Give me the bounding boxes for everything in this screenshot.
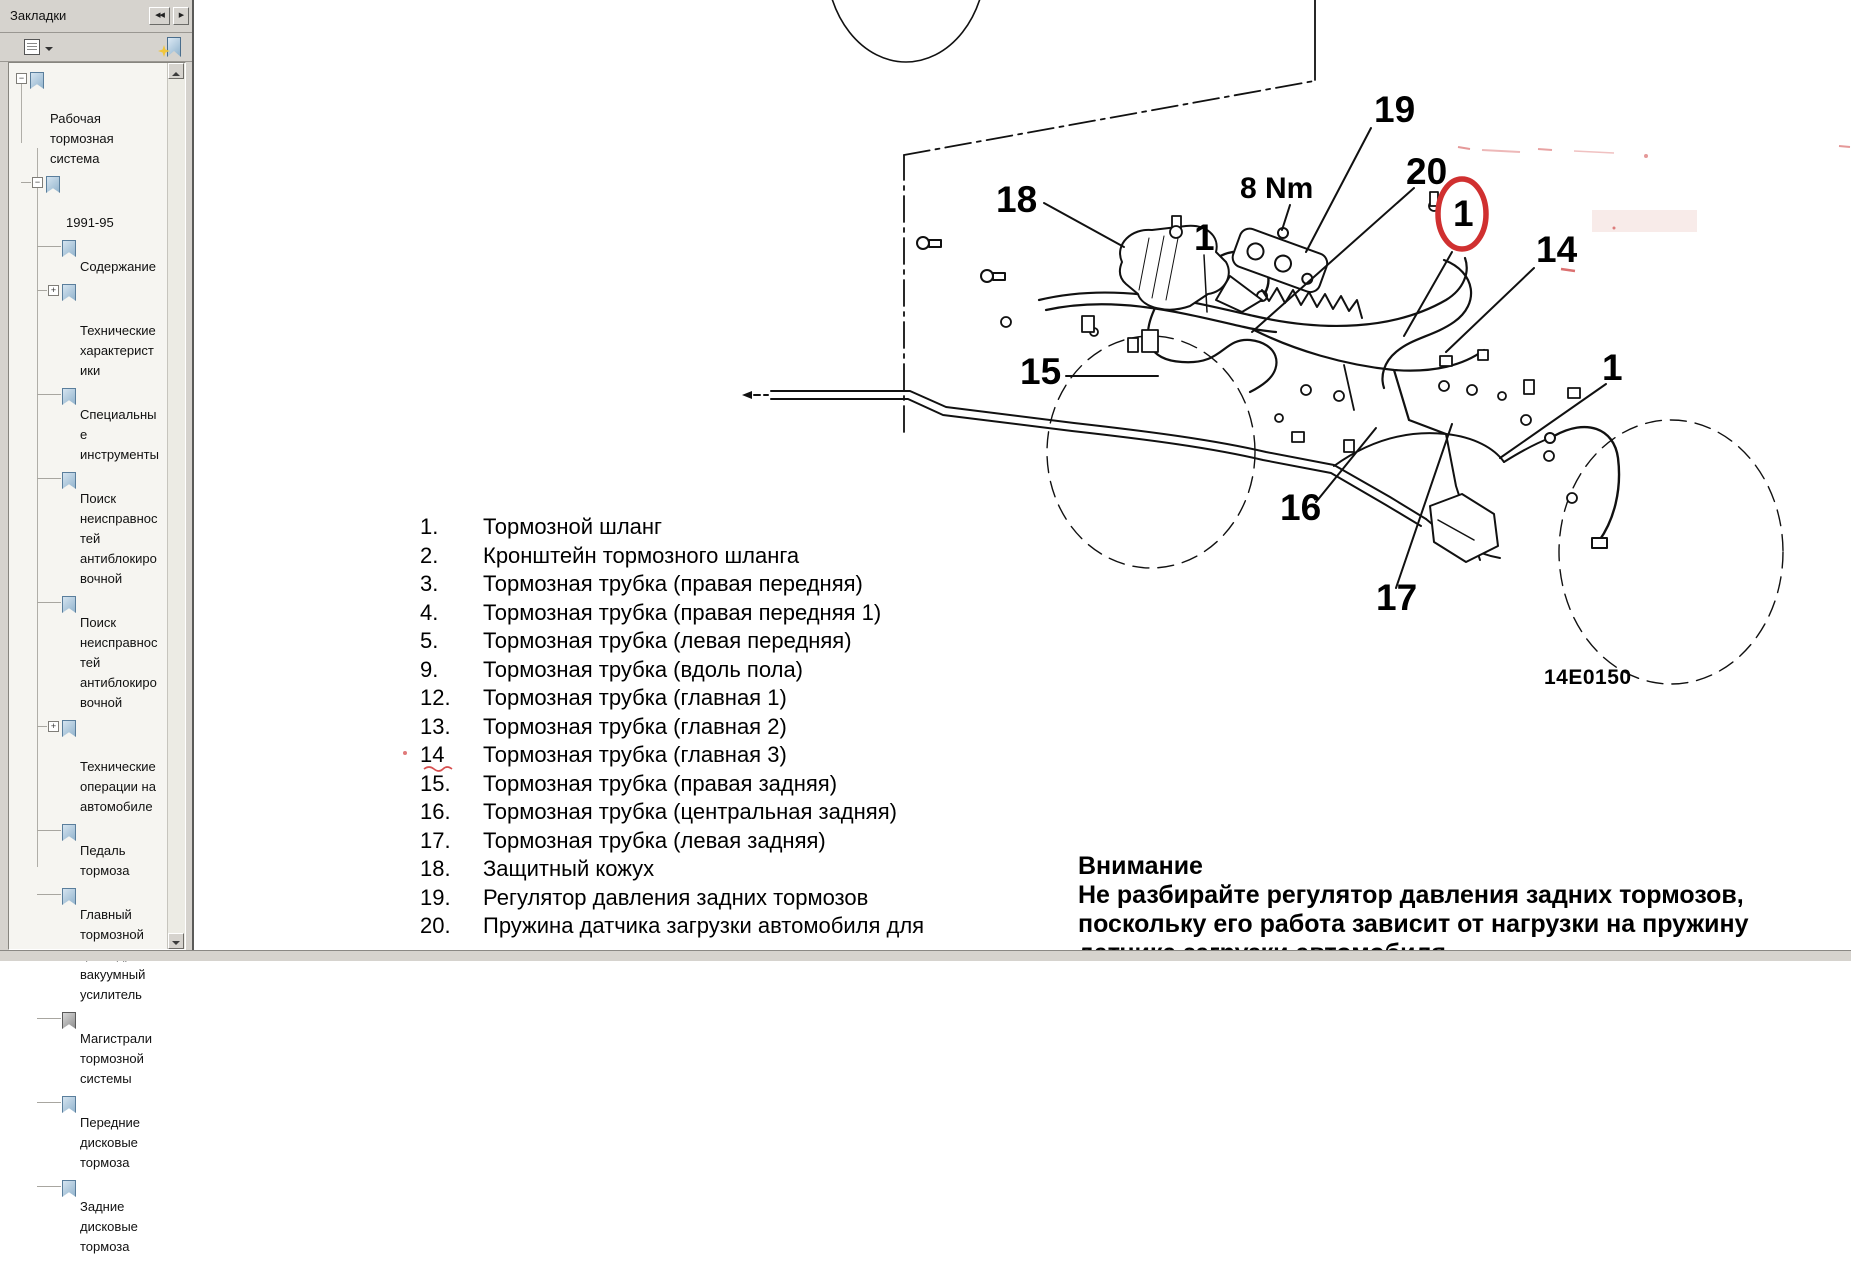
- main-brake-pipes: [1039, 258, 1484, 434]
- item-number: 1.: [420, 514, 483, 540]
- list-item: 13.Тормозная трубка (главная 2): [420, 713, 924, 742]
- list-item: 3.Тормозная трубка (правая передняя): [420, 570, 924, 599]
- callout-1-right: 1: [1602, 347, 1623, 388]
- list-item: 20.Пружина датчика загрузки автомобиля д…: [420, 912, 924, 941]
- torque-label: 8 Nm: [1240, 172, 1313, 205]
- item-number: 17.: [420, 828, 483, 854]
- protective-cover-18: [917, 226, 1229, 310]
- warning-line: поскольку его работа зависит от нагрузки…: [1078, 910, 1838, 939]
- bookmark-rabochaya-tormoznaya-sistema[interactable]: Рабочая тормозная система: [10, 69, 167, 169]
- callout-19: 19: [1374, 89, 1415, 130]
- bookmark-icon: [46, 176, 60, 193]
- bookmark-label: Передние дисковые тормоза: [80, 1115, 140, 1170]
- bookmark-icon: [62, 888, 76, 905]
- bookmarks-header: Закладки ◀◀ ▶: [0, 0, 192, 33]
- bookmark-ribbon-icon: [167, 37, 181, 57]
- item-number: 19.: [420, 885, 483, 911]
- item-text: Тормозная трубка (левая задняя): [483, 828, 826, 854]
- window-bottom-bar: [0, 950, 1851, 961]
- bookmark-poisk-neispravnostey-2[interactable]: Поиск неисправнос тей антиблокиро вочной: [10, 593, 167, 713]
- bookmark-icon: [62, 596, 76, 613]
- callout-15: 15: [1020, 351, 1061, 392]
- bookmark-icon: [62, 388, 76, 405]
- item-number: 2.: [420, 543, 483, 569]
- callout-20: 20: [1406, 151, 1447, 192]
- options-list-icon: [24, 39, 40, 55]
- callout-1-circled: 1: [1453, 193, 1474, 234]
- bookmark-tekhnicheskie-kharakteristiki[interactable]: Технические характерист ики: [10, 281, 167, 381]
- collapse-node-icon[interactable]: [32, 177, 43, 188]
- floor-brake-tubes: [742, 391, 1426, 526]
- tree-scrollbar[interactable]: [167, 63, 185, 949]
- callout-14: 14: [1536, 229, 1578, 270]
- parts-list: 1.Тормозной шланг 2.Кронштейн тормозного…: [420, 513, 924, 941]
- expand-node-icon[interactable]: [48, 285, 59, 296]
- item-text: Регулятор давления задних тормозов: [483, 885, 868, 911]
- bookmark-magistrali-tormoznoy-sistemy[interactable]: Магистрали тормозной системы: [10, 1009, 167, 1089]
- bookmark-icon: [62, 240, 76, 257]
- bookmark-icon: [62, 284, 76, 301]
- bookmark-label: Задние дисковые тормоза: [80, 1199, 138, 1254]
- item-text: Кронштейн тормозного шланга: [483, 543, 799, 569]
- bookmark-label: Технические характерист ики: [80, 323, 156, 378]
- item-number: 15.: [420, 771, 483, 797]
- bookmarks-tree: Рабочая тормозная система 1991-95 Содерж…: [8, 62, 186, 950]
- item-number: 4.: [420, 600, 483, 626]
- warning-block: Внимание Не разбирайте регулятор давлени…: [1078, 852, 1838, 950]
- list-item: 9.Тормозная трубка (вдоль пола): [420, 656, 924, 685]
- item-number: 12.: [420, 685, 483, 711]
- panel-outline: [826, 0, 1315, 432]
- item-number: 3.: [420, 571, 483, 597]
- item-text: Тормозная трубка (правая передняя 1): [483, 600, 881, 626]
- list-item: 1.Тормозной шланг: [420, 513, 924, 542]
- bookmark-label: Поиск неисправнос тей антиблокиро вочной: [80, 491, 158, 586]
- warning-line: Не разбирайте регулятор давления задних …: [1078, 881, 1838, 910]
- bookmark-tekhnicheskie-operatsii[interactable]: Технические операции на автомобиле: [10, 717, 167, 817]
- item-text: Тормозная трубка (главная 1): [483, 685, 787, 711]
- scroll-up-arrow[interactable]: [168, 63, 184, 79]
- document-page: 18 8 Nm 19 20 1 1 14 15 16 17 1 14E0150: [194, 0, 1851, 950]
- bookmark-label: 1991-95: [66, 215, 114, 230]
- item-number: 14: [420, 742, 483, 768]
- bookmark-icon: [62, 824, 76, 841]
- list-item: 19.Регулятор давления задних тормозов: [420, 884, 924, 913]
- item-text: Тормозная трубка (левая передняя): [483, 628, 852, 654]
- list-item: 18.Защитный кожух: [420, 855, 924, 884]
- bookmark-icon: [30, 72, 44, 89]
- list-item: 2.Кронштейн тормозного шланга: [420, 542, 924, 571]
- bookmarks-title: Закладки: [10, 8, 66, 23]
- callout-18: 18: [996, 179, 1037, 220]
- list-item: 17.Тормозная трубка (левая задняя): [420, 827, 924, 856]
- callout-1-left: 1: [1194, 217, 1215, 258]
- item-text: Защитный кожух: [483, 856, 654, 882]
- expand-node-icon[interactable]: [48, 721, 59, 732]
- item-number: 18.: [420, 856, 483, 882]
- item-number: 16.: [420, 799, 483, 825]
- item-text: Тормозная трубка (главная 3): [483, 742, 787, 768]
- item-number: 5.: [420, 628, 483, 654]
- callout-16: 16: [1280, 487, 1321, 528]
- bookmarks-toolbar: [0, 33, 192, 62]
- list-item: 15.Тормозная трубка (правая задняя): [420, 770, 924, 799]
- scroll-down-arrow[interactable]: [168, 933, 184, 949]
- collapse-panel-button[interactable]: ◀◀: [149, 7, 170, 25]
- new-bookmark-button[interactable]: [158, 36, 182, 58]
- bookmark-label: Рабочая тормозная система: [50, 111, 114, 166]
- item-text: Пружина датчика загрузки автомобиля для: [483, 913, 924, 939]
- bookmarks-panel: Закладки ◀◀ ▶ Рабочая тормозная система …: [0, 0, 194, 950]
- item-number: 20.: [420, 913, 483, 939]
- bookmark-label: Педаль тормоза: [80, 843, 129, 878]
- item-number: 13.: [420, 714, 483, 740]
- bookmark-icon: [62, 1096, 76, 1113]
- list-item: 4.Тормозная трубка (правая передняя 1): [420, 599, 924, 628]
- bookmark-spetsialnye-instrumenty[interactable]: Специальны е инструменты: [10, 385, 167, 465]
- bookmark-label: Поиск неисправнос тей антиблокиро вочной: [80, 615, 158, 710]
- brake-pipe-14: [1383, 260, 1472, 388]
- bookmark-label: Специальны е инструменты: [80, 407, 159, 462]
- item-text: Тормозная трубка (главная 2): [483, 714, 787, 740]
- bookmark-icon: [62, 1012, 76, 1029]
- list-item: 5.Тормозная трубка (левая передняя): [420, 627, 924, 656]
- bookmark-perednie-diskovye-tormoza[interactable]: Передние дисковые тормоза: [10, 1093, 167, 1173]
- expand-panel-button[interactable]: ▶: [173, 7, 189, 25]
- figure-code: 14E0150: [1544, 666, 1632, 689]
- item-text: Тормозной шланг: [483, 514, 662, 540]
- bookmark-glavnyy-tormoznoy-tsilindr[interactable]: Главный тормозной цилиндр и вакуумный ус…: [10, 885, 167, 1005]
- callout-17: 17: [1376, 577, 1417, 618]
- list-item: 16.Тормозная трубка (центральная задняя): [420, 798, 924, 827]
- list-item: 12.Тормозная трубка (главная 1): [420, 684, 924, 713]
- bookmark-soderzhanie[interactable]: Содержание: [10, 237, 167, 277]
- item-number: 9.: [420, 657, 483, 683]
- bookmark-label: Содержание: [80, 259, 156, 274]
- bookmark-pedal-tormoza[interactable]: Педаль тормоза: [10, 821, 167, 881]
- list-item: 14Тормозная трубка (главная 3): [420, 741, 924, 770]
- bookmark-1991-95[interactable]: 1991-95: [10, 173, 167, 233]
- collapse-node-icon[interactable]: [16, 73, 27, 84]
- bookmark-icon: [62, 1180, 76, 1197]
- warning-title: Внимание: [1078, 852, 1838, 881]
- warning-line: датчика загрузки автомобиля: [1078, 939, 1838, 950]
- bookmarks-tree-items: Рабочая тормозная система 1991-95 Содерж…: [10, 69, 167, 1261]
- item-text: Тормозная трубка (правая задняя): [483, 771, 837, 797]
- bookmark-zadnie-diskovye-tormoza[interactable]: Задние дисковые тормоза: [10, 1177, 167, 1257]
- bookmark-poisk-neispravnostey-1[interactable]: Поиск неисправнос тей антиблокиро вочной: [10, 469, 167, 589]
- rear-wheel-circle: [1559, 420, 1783, 684]
- chevron-down-icon: [45, 47, 53, 55]
- bookmark-label: Магистрали тормозной системы: [80, 1031, 152, 1086]
- bookmark-icon: [62, 720, 76, 737]
- item-text: Тормозная трубка (правая передняя): [483, 571, 863, 597]
- item-text: Тормозная трубка (центральная задняя): [483, 799, 897, 825]
- options-menu-button[interactable]: [24, 37, 64, 57]
- bookmark-label: Технические операции на автомобиле: [80, 759, 156, 814]
- item-text: Тормозная трубка (вдоль пола): [483, 657, 803, 683]
- bookmark-icon: [62, 472, 76, 489]
